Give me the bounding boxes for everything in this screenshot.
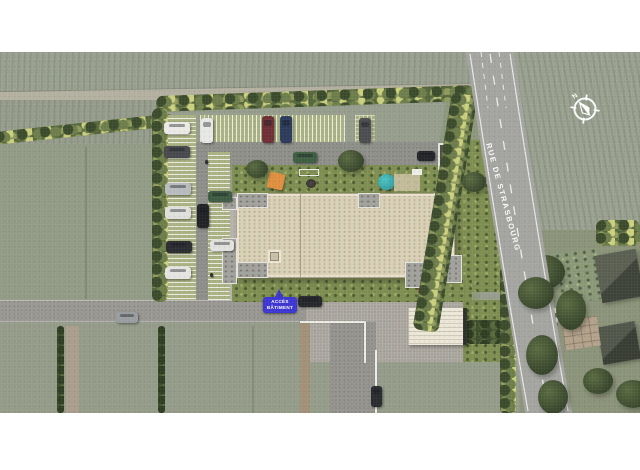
car bbox=[166, 241, 192, 253]
car bbox=[208, 191, 232, 202]
car bbox=[280, 116, 292, 143]
screenshot-stage: RUE DE STRASBOURG N ACCÈS bbox=[0, 0, 640, 470]
tree-garden-north bbox=[246, 160, 268, 178]
car bbox=[165, 183, 191, 195]
car bbox=[293, 152, 317, 163]
curb-line-h bbox=[300, 321, 366, 323]
building-roof-joint bbox=[300, 194, 301, 277]
parcel-line-south bbox=[252, 326, 254, 413]
terrace-north-1 bbox=[237, 193, 268, 208]
pergola-white bbox=[299, 169, 319, 176]
house-roof-2 bbox=[597, 321, 640, 365]
bench-white bbox=[412, 169, 422, 175]
terrace-north-2 bbox=[358, 193, 380, 208]
roadside-bushes-south bbox=[500, 268, 516, 413]
fire-pit bbox=[306, 179, 316, 188]
field-west bbox=[0, 144, 160, 302]
pedestrian bbox=[205, 160, 208, 164]
car bbox=[165, 267, 191, 279]
field-boundary-line bbox=[85, 147, 87, 299]
car bbox=[371, 386, 382, 407]
aerial-scene: RUE DE STRASBOURG N ACCÈS bbox=[0, 52, 640, 413]
trees-northeast-corner bbox=[596, 220, 640, 246]
access-badge-arrow bbox=[275, 289, 283, 297]
canopy-orange bbox=[267, 172, 286, 191]
hedge-garage-east bbox=[465, 320, 503, 344]
tree-road-east bbox=[556, 290, 586, 330]
tree-garden-east bbox=[462, 172, 486, 192]
hedge-column-south-2 bbox=[158, 326, 165, 413]
car bbox=[165, 207, 191, 219]
access-badge-line2: BÂTIMENT bbox=[263, 305, 297, 311]
house-roof-1 bbox=[594, 249, 640, 304]
car bbox=[417, 151, 435, 161]
terrace-south-1 bbox=[237, 262, 268, 278]
letterbox-bottom bbox=[0, 413, 640, 470]
dirt-path-south bbox=[66, 326, 79, 413]
car bbox=[197, 204, 209, 228]
field-northeast bbox=[495, 52, 640, 234]
car bbox=[298, 296, 322, 307]
curb-line-v1 bbox=[364, 321, 366, 363]
tree-garden-mid bbox=[338, 150, 364, 172]
car bbox=[164, 146, 190, 158]
letterbox-top bbox=[0, 0, 640, 52]
tree-road-overhang-1 bbox=[518, 277, 554, 309]
neighbor-dirt-edge bbox=[300, 322, 310, 413]
car bbox=[210, 240, 234, 251]
parasol-teal bbox=[378, 174, 395, 190]
car bbox=[262, 116, 274, 143]
car bbox=[116, 312, 138, 323]
deck-terrace bbox=[394, 174, 420, 191]
car bbox=[359, 118, 371, 143]
tree-road-overhang-3 bbox=[538, 380, 568, 413]
pedestrian bbox=[210, 273, 213, 277]
access-badge: ACCÈS BÂTIMENT bbox=[263, 297, 297, 313]
tree-road-overhang-2 bbox=[526, 335, 558, 375]
car bbox=[164, 122, 190, 134]
tree-se-2 bbox=[583, 368, 613, 394]
roof-access-hatch bbox=[268, 250, 281, 263]
hedge-column-south-1 bbox=[57, 326, 64, 413]
car bbox=[201, 118, 213, 143]
neighbor-driveway bbox=[330, 322, 376, 413]
